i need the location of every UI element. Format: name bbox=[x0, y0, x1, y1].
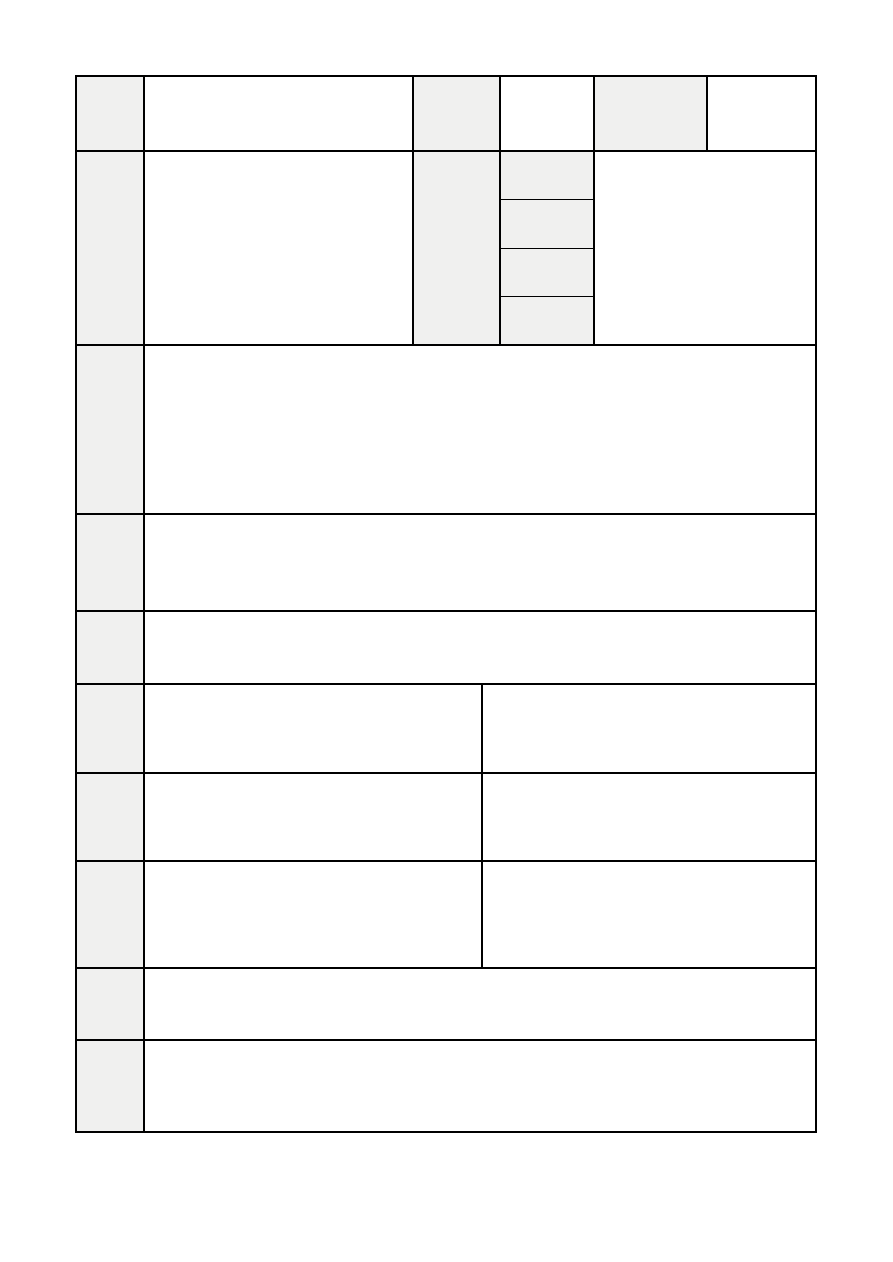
row-5 bbox=[77, 612, 815, 685]
row-1-field-cell-2[interactable] bbox=[145, 77, 414, 150]
row-5-label-cell-1 bbox=[77, 612, 145, 683]
row-4-label-cell-1 bbox=[77, 515, 145, 610]
row-9 bbox=[77, 969, 815, 1041]
row-9-field-cell-2[interactable] bbox=[145, 969, 815, 1039]
row-2-label-sub-cell-4 bbox=[501, 297, 593, 344]
row-6-field-cell-2[interactable] bbox=[145, 685, 483, 772]
row-10-field-cell-2[interactable] bbox=[145, 1041, 815, 1131]
row-7-label-cell-1 bbox=[77, 774, 145, 860]
row-5-field-cell-2[interactable] bbox=[145, 612, 815, 683]
row-2-label-sub-cell-1 bbox=[501, 152, 593, 200]
row-1 bbox=[77, 77, 815, 152]
row-7-field-cell-3[interactable] bbox=[483, 774, 815, 860]
row-8-label-cell-1 bbox=[77, 862, 145, 967]
row-2 bbox=[77, 152, 815, 346]
row-6-label-cell-1 bbox=[77, 685, 145, 772]
row-4-field-cell-2[interactable] bbox=[145, 515, 815, 610]
row-9-label-cell-1 bbox=[77, 969, 145, 1039]
row-6 bbox=[77, 685, 815, 774]
row-8-field-cell-2[interactable] bbox=[145, 862, 483, 967]
row-3 bbox=[77, 346, 815, 515]
row-3-label-cell-1 bbox=[77, 346, 145, 513]
row-4 bbox=[77, 515, 815, 612]
blank-table bbox=[75, 75, 817, 1133]
row-2-field-cell-2[interactable] bbox=[145, 152, 414, 344]
row-7 bbox=[77, 774, 815, 862]
row-8 bbox=[77, 862, 815, 969]
row-6-field-cell-3[interactable] bbox=[483, 685, 815, 772]
row-1-label-cell-3 bbox=[414, 77, 501, 150]
row-1-field-cell-4[interactable] bbox=[501, 77, 595, 150]
row-7-field-cell-2[interactable] bbox=[145, 774, 483, 860]
row-2-label-cell-3 bbox=[414, 152, 501, 344]
row-2-field-cell-4 bbox=[501, 152, 595, 344]
row-10-label-cell-1 bbox=[77, 1041, 145, 1131]
row-2-label-sub-cell-2 bbox=[501, 200, 593, 248]
row-2-label-sub-cell-3 bbox=[501, 249, 593, 297]
row-3-field-cell-2[interactable] bbox=[145, 346, 815, 513]
row-1-label-cell-5 bbox=[595, 77, 708, 150]
document-page bbox=[0, 0, 893, 1262]
row-1-label-cell-1 bbox=[77, 77, 145, 150]
row-8-field-cell-3[interactable] bbox=[483, 862, 815, 967]
row-1-field-cell-6[interactable] bbox=[708, 77, 815, 150]
row-10 bbox=[77, 1041, 815, 1131]
row-2-label-cell-1 bbox=[77, 152, 145, 344]
row-2-field-cell-5[interactable] bbox=[595, 152, 815, 344]
